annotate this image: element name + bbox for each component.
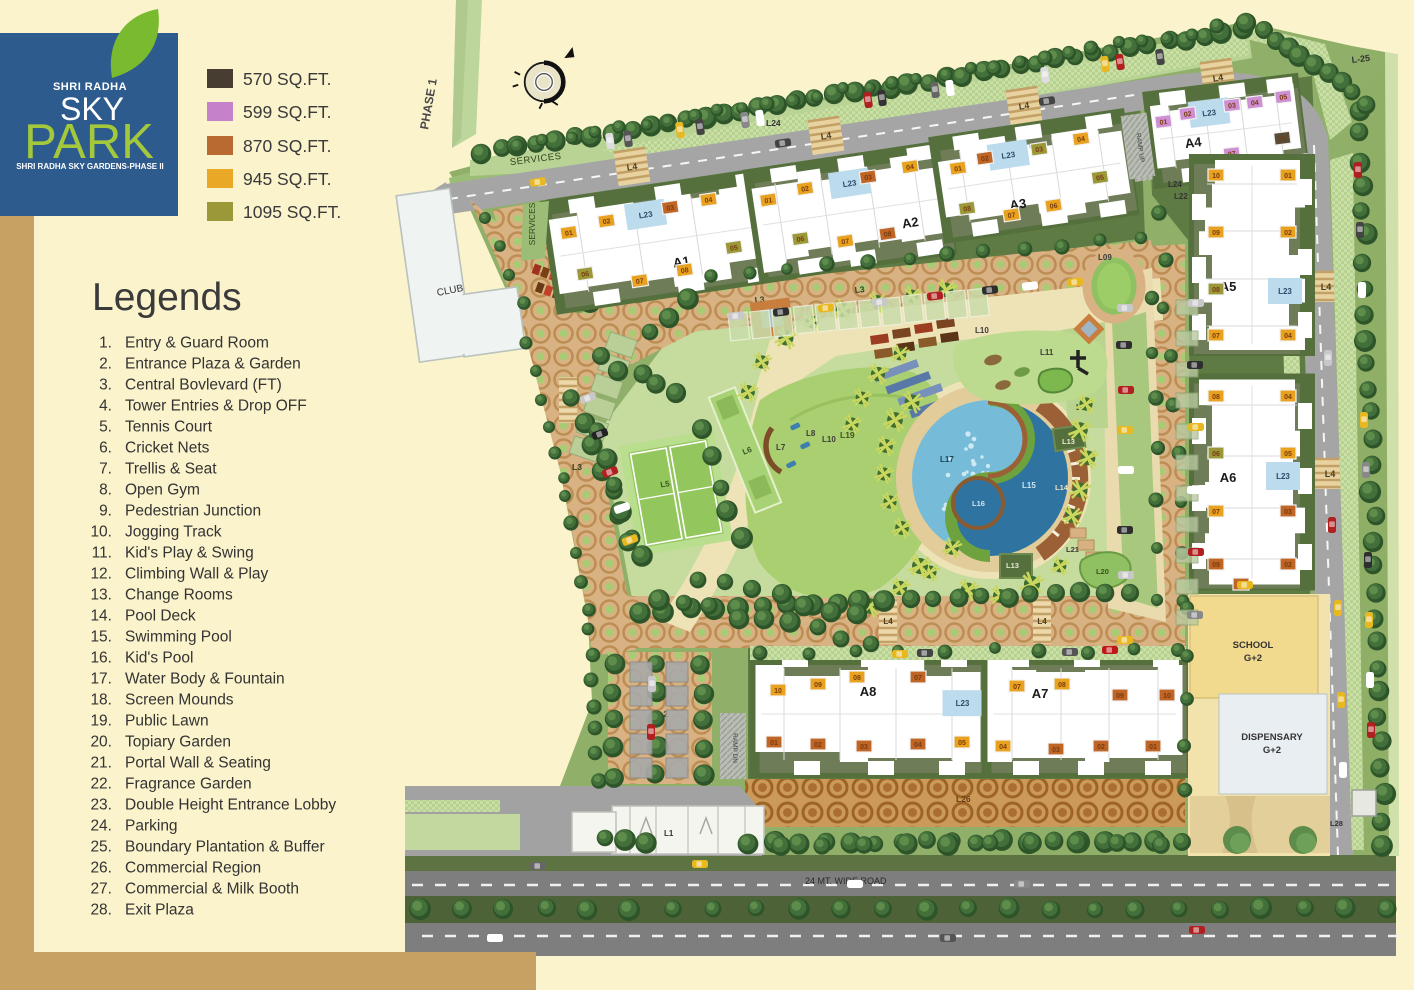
svg-text:03: 03 <box>864 174 873 182</box>
svg-text:Entrance Plaza & Garden: Entrance Plaza & Garden <box>125 356 301 373</box>
svg-text:L10: L10 <box>975 326 989 335</box>
svg-text:02: 02 <box>1097 744 1105 751</box>
svg-text:21.: 21. <box>90 755 112 772</box>
svg-text:06: 06 <box>796 236 805 244</box>
svg-text:26.: 26. <box>90 860 112 877</box>
svg-text:Double Height Entrance Lobby: Double Height Entrance Lobby <box>125 797 336 814</box>
svg-text:L15: L15 <box>1022 481 1036 490</box>
svg-text:Screen Mounds: Screen Mounds <box>125 692 234 709</box>
svg-text:02: 02 <box>814 742 822 749</box>
svg-text:L28: L28 <box>1330 819 1343 828</box>
svg-text:13.: 13. <box>90 587 112 604</box>
svg-text:Portal Wall & Seating: Portal Wall & Seating <box>125 755 271 772</box>
svg-text:Tennis Court: Tennis Court <box>125 419 213 436</box>
svg-text:01: 01 <box>770 740 778 747</box>
svg-text:02: 02 <box>1284 562 1292 569</box>
svg-text:Legends: Legends <box>92 276 242 319</box>
svg-text:06: 06 <box>581 271 590 279</box>
svg-text:07: 07 <box>841 238 850 246</box>
svg-text:L23: L23 <box>956 699 970 708</box>
svg-text:Open Gym: Open Gym <box>125 482 200 499</box>
svg-text:L23: L23 <box>1276 472 1290 481</box>
svg-text:L1: L1 <box>664 829 674 838</box>
svg-text:5.: 5. <box>99 419 112 436</box>
svg-text:A4: A4 <box>1184 134 1203 151</box>
svg-text:Boundary Plantation & Buffer: Boundary Plantation & Buffer <box>125 839 325 856</box>
svg-text:09: 09 <box>1116 693 1124 700</box>
svg-text:L24: L24 <box>1168 180 1182 189</box>
svg-text:Kid's Pool: Kid's Pool <box>125 650 193 667</box>
svg-text:08: 08 <box>1058 682 1066 689</box>
svg-text:02: 02 <box>602 218 611 226</box>
svg-text:08: 08 <box>883 231 892 239</box>
svg-text:A8: A8 <box>860 684 877 699</box>
svg-text:08: 08 <box>1212 287 1220 294</box>
svg-text:17.: 17. <box>90 671 112 688</box>
svg-text:A7: A7 <box>1032 686 1049 701</box>
svg-text:05: 05 <box>1279 94 1288 102</box>
svg-text:L4: L4 <box>1321 282 1332 292</box>
svg-text:A6: A6 <box>1220 470 1237 485</box>
svg-text:L19: L19 <box>840 430 855 440</box>
svg-text:Kid's Play & Swing: Kid's Play & Swing <box>125 545 254 562</box>
svg-text:8.: 8. <box>99 482 112 499</box>
svg-text:Exit Plaza: Exit Plaza <box>125 902 194 919</box>
svg-text:07: 07 <box>1013 684 1021 691</box>
svg-text:10: 10 <box>774 688 782 695</box>
svg-text:G+2: G+2 <box>1244 653 1262 664</box>
svg-text:07: 07 <box>1212 509 1220 516</box>
svg-text:L4: L4 <box>820 130 832 141</box>
svg-text:Cricket Nets: Cricket Nets <box>125 440 210 457</box>
svg-text:01: 01 <box>1284 173 1292 180</box>
svg-text:Change Rooms: Change Rooms <box>125 587 233 604</box>
svg-text:02: 02 <box>1284 230 1292 237</box>
svg-text:09: 09 <box>1212 562 1220 569</box>
svg-text:G+2: G+2 <box>1263 745 1281 756</box>
svg-text:05: 05 <box>1284 451 1292 458</box>
svg-text:04: 04 <box>1284 333 1292 340</box>
svg-text:09: 09 <box>814 682 822 689</box>
svg-text:01: 01 <box>565 230 574 238</box>
svg-text:945 SQ.FT.: 945 SQ.FT. <box>243 169 332 189</box>
svg-text:L26: L26 <box>956 794 971 804</box>
svg-text:Pedestrian Junction: Pedestrian Junction <box>125 503 261 520</box>
svg-text:04: 04 <box>1284 394 1292 401</box>
svg-text:L10: L10 <box>822 435 836 444</box>
svg-text:599 SQ.FT.: 599 SQ.FT. <box>243 102 332 122</box>
svg-text:04: 04 <box>704 197 713 205</box>
svg-text:03: 03 <box>666 205 675 213</box>
svg-text:02: 02 <box>981 155 990 163</box>
svg-text:DISPENSARY: DISPENSARY <box>1241 732 1303 743</box>
svg-text:04: 04 <box>1077 136 1086 144</box>
svg-text:08: 08 <box>963 205 972 213</box>
svg-text:Commercial Region: Commercial Region <box>125 860 261 877</box>
svg-text:2.: 2. <box>99 356 112 373</box>
svg-text:PARK: PARK <box>24 115 154 169</box>
svg-text:27.: 27. <box>90 881 112 898</box>
svg-text:14.: 14. <box>90 608 112 625</box>
svg-text:L4: L4 <box>1325 469 1336 479</box>
svg-text:L22: L22 <box>1174 192 1188 201</box>
svg-text:Topiary Garden: Topiary Garden <box>125 734 231 751</box>
svg-text:03: 03 <box>860 744 868 751</box>
svg-text:L23: L23 <box>1278 287 1292 296</box>
svg-text:L8: L8 <box>806 429 816 438</box>
svg-text:24.: 24. <box>90 818 112 835</box>
svg-text:7.: 7. <box>99 461 112 478</box>
svg-text:04: 04 <box>999 744 1007 751</box>
svg-text:L4: L4 <box>1018 100 1030 111</box>
svg-text:03: 03 <box>1052 747 1060 754</box>
svg-text:16.: 16. <box>90 650 112 667</box>
svg-text:Swimming Pool: Swimming Pool <box>125 629 232 646</box>
svg-text:SCHOOL: SCHOOL <box>1233 640 1274 651</box>
svg-text:Parking: Parking <box>125 818 178 835</box>
svg-text:01: 01 <box>1159 119 1168 127</box>
svg-text:SHRI RADHA SKY GARDENS-PHASE I: SHRI RADHA SKY GARDENS-PHASE II <box>16 162 164 171</box>
svg-text:L21: L21 <box>1066 545 1079 554</box>
svg-text:19.: 19. <box>90 713 112 730</box>
svg-text:Commercial & Milk Booth: Commercial & Milk Booth <box>125 881 299 898</box>
svg-text:10: 10 <box>1212 173 1220 180</box>
svg-text:Pool Deck: Pool Deck <box>125 608 196 625</box>
svg-text:06: 06 <box>1278 136 1287 144</box>
svg-text:L13: L13 <box>1006 561 1019 570</box>
svg-text:RAMP DN: RAMP DN <box>731 733 738 763</box>
svg-text:L23: L23 <box>1202 108 1217 119</box>
svg-text:03: 03 <box>1035 146 1044 154</box>
svg-text:07: 07 <box>1007 212 1016 220</box>
svg-text:Central Bovlevard (FT): Central Bovlevard (FT) <box>125 377 282 394</box>
svg-text:05: 05 <box>730 245 739 253</box>
svg-text:10: 10 <box>1163 693 1171 700</box>
svg-text:570 SQ.FT.: 570 SQ.FT. <box>243 69 332 89</box>
svg-text:04: 04 <box>1251 100 1260 108</box>
svg-text:11.: 11. <box>92 545 112 562</box>
svg-text:L09: L09 <box>1098 253 1112 262</box>
svg-text:06: 06 <box>1212 451 1220 458</box>
svg-text:L24: L24 <box>766 118 781 128</box>
svg-text:Water Body & Fountain: Water Body & Fountain <box>125 671 285 688</box>
svg-text:12.: 12. <box>90 566 112 583</box>
svg-text:L14: L14 <box>1055 483 1069 492</box>
svg-text:05: 05 <box>1096 175 1105 183</box>
svg-text:22.: 22. <box>90 776 112 793</box>
svg-text:04: 04 <box>906 164 915 172</box>
svg-text:20.: 20. <box>90 734 112 751</box>
svg-text:24 MT. WIDE ROAD: 24 MT. WIDE ROAD <box>805 876 887 886</box>
svg-text:28.: 28. <box>90 902 112 919</box>
svg-text:15.: 15. <box>90 629 112 646</box>
svg-text:09: 09 <box>1212 230 1220 237</box>
svg-text:02: 02 <box>1183 111 1192 119</box>
svg-text:01: 01 <box>954 165 963 173</box>
svg-text:Climbing Wall & Play: Climbing Wall & Play <box>125 566 269 583</box>
svg-text:1.: 1. <box>99 335 112 352</box>
svg-text:05: 05 <box>958 740 966 747</box>
svg-text:Fragrance Garden: Fragrance Garden <box>125 776 252 793</box>
svg-text:04: 04 <box>914 742 922 749</box>
svg-text:L4: L4 <box>1212 72 1224 83</box>
svg-text:10.: 10. <box>90 524 112 541</box>
svg-text:01: 01 <box>1149 744 1157 751</box>
svg-text:L17: L17 <box>940 455 954 464</box>
svg-text:23.: 23. <box>90 797 112 814</box>
svg-text:07: 07 <box>636 278 645 286</box>
svg-text:L4: L4 <box>626 161 638 172</box>
svg-text:SERVICES: SERVICES <box>527 202 537 245</box>
svg-text:07: 07 <box>914 675 922 682</box>
svg-text:03: 03 <box>1228 102 1237 110</box>
svg-text:9.: 9. <box>99 503 112 520</box>
svg-text:07: 07 <box>1212 333 1220 340</box>
svg-text:L7: L7 <box>776 443 786 452</box>
svg-text:Trellis & Seat: Trellis & Seat <box>125 461 217 478</box>
svg-text:Public Lawn: Public Lawn <box>125 713 209 730</box>
svg-text:L11: L11 <box>1040 348 1054 357</box>
svg-text:03: 03 <box>1284 509 1292 516</box>
svg-text:08: 08 <box>1212 394 1220 401</box>
svg-text:L16: L16 <box>972 499 985 508</box>
svg-text:Jogging Track: Jogging Track <box>125 524 222 541</box>
svg-text:4.: 4. <box>99 398 112 415</box>
svg-text:08: 08 <box>853 675 861 682</box>
svg-text:L3: L3 <box>572 462 582 472</box>
svg-text:25.: 25. <box>90 839 112 856</box>
svg-text:18.: 18. <box>90 692 112 709</box>
svg-text:01: 01 <box>764 197 773 205</box>
svg-text:3.: 3. <box>99 377 112 394</box>
svg-text:870 SQ.FT.: 870 SQ.FT. <box>243 136 332 156</box>
svg-text:02: 02 <box>801 186 810 194</box>
svg-text:6.: 6. <box>99 440 112 457</box>
svg-text:1095 SQ.FT.: 1095 SQ.FT. <box>243 202 341 222</box>
svg-text:Tower Entries & Drop OFF: Tower Entries & Drop OFF <box>125 398 307 415</box>
svg-text:06: 06 <box>1049 203 1058 211</box>
svg-text:08: 08 <box>680 267 689 275</box>
svg-text:Entry & Guard Room: Entry & Guard Room <box>125 335 269 352</box>
svg-text:A2: A2 <box>901 214 920 231</box>
svg-text:L20: L20 <box>1096 567 1109 576</box>
